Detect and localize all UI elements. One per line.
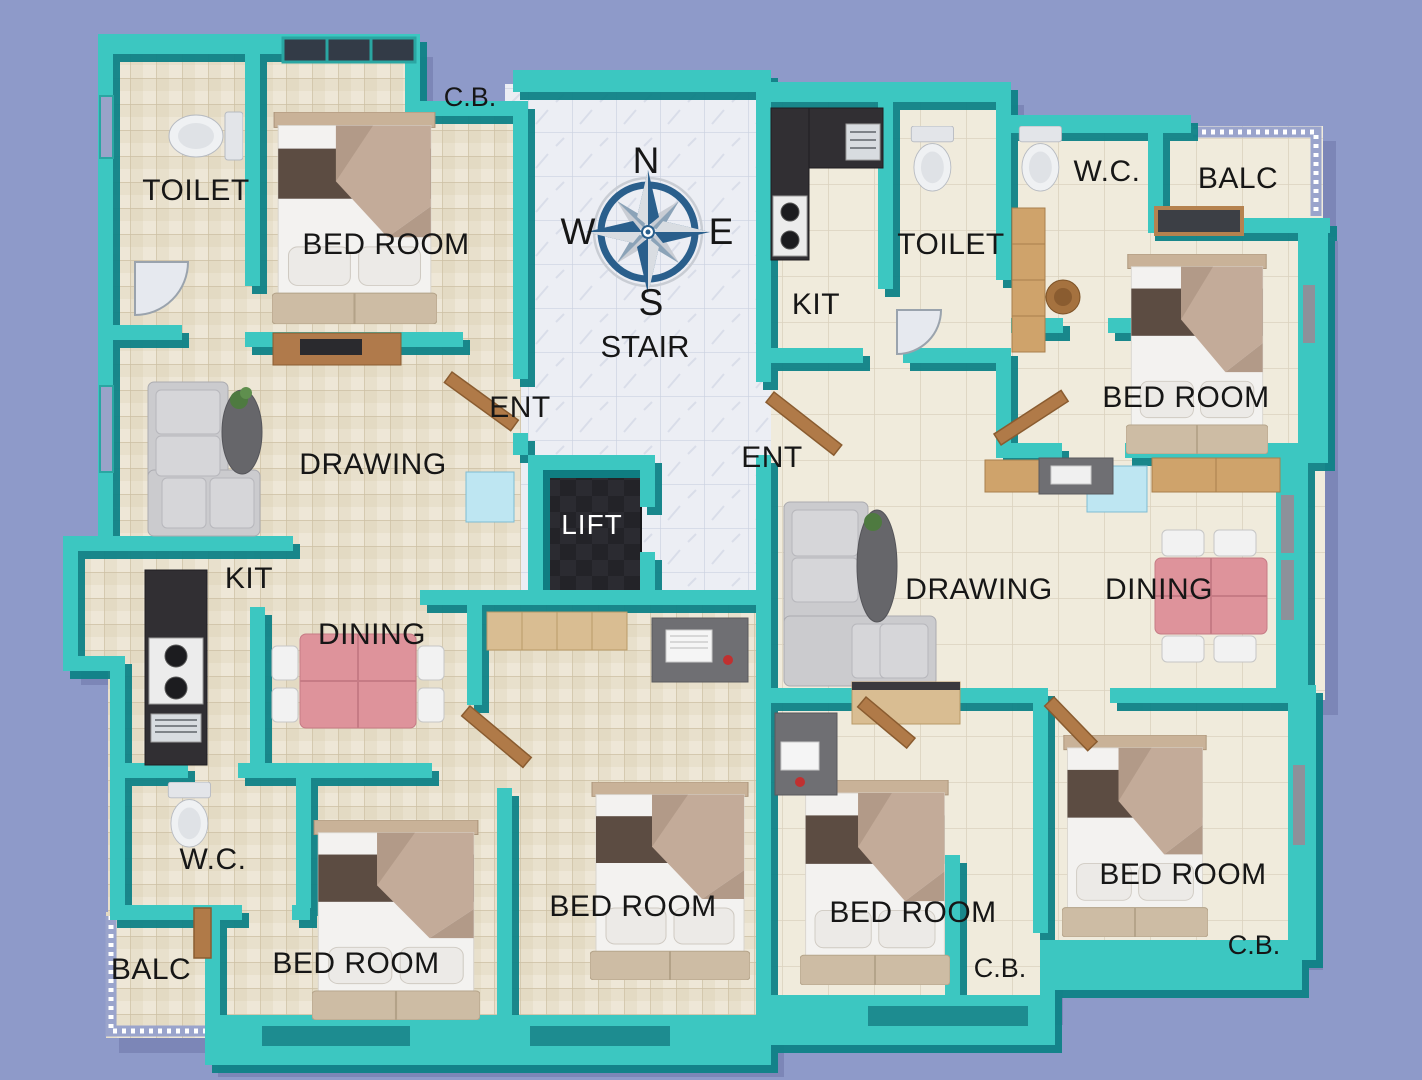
bed-bottom-left [312, 820, 480, 1020]
label-cb-bottom-middle: C.B. [974, 953, 1027, 983]
bed-bottom-middle [590, 782, 750, 980]
desk-dining-right [985, 458, 1113, 494]
label-compass-north: N [633, 140, 660, 181]
bed-top-left [272, 112, 437, 324]
shoe-cabinet-left [466, 472, 514, 522]
label-ent-right: ENT [741, 441, 803, 474]
wc-fixture-right [1019, 126, 1061, 191]
label-cb-top-left: C.B. [444, 82, 497, 112]
desk-bedroom-mid-right [775, 713, 837, 795]
label-wc-right: W.C. [1074, 155, 1141, 188]
window-right-wall-bedroom6 [1293, 765, 1305, 845]
wc-fixture-left [168, 782, 210, 847]
label-kit-right: KIT [792, 288, 840, 321]
door-balcony-left [194, 908, 211, 958]
label-dining-left: DINING [318, 618, 426, 651]
rattan-stool-center [1054, 288, 1072, 306]
wardrobe-lobby-right [1012, 208, 1045, 352]
kitchen-counter-left [145, 570, 207, 765]
bed-bottom-right [1062, 735, 1208, 937]
window-right-wall-dining-2 [1281, 560, 1294, 620]
sideboard-dining-right [1152, 458, 1280, 492]
window-right-wall-bedroom4 [1303, 285, 1315, 343]
label-bedroom-top-right: BED ROOM [1102, 381, 1269, 414]
label-bedroom-bottom-middle: BED ROOM [549, 890, 716, 923]
label-bedroom-mid-right: BED ROOM [829, 896, 996, 929]
label-toilet-right: TOILET [897, 228, 1004, 261]
label-ent-left: ENT [489, 391, 551, 424]
label-balc-right: BALC [1198, 162, 1278, 195]
label-compass-south: S [639, 282, 664, 323]
label-compass-east: E [709, 211, 734, 252]
label-compass-west: W [561, 211, 596, 252]
desk-bedroom-middle [652, 618, 748, 682]
label-cb-bottom-right: C.B. [1228, 930, 1281, 960]
toilet-fixture-left [169, 112, 243, 160]
label-dining-right: DINING [1105, 573, 1213, 606]
label-bedroom-bottom-right: BED ROOM [1099, 858, 1266, 891]
label-wc-left: W.C. [180, 843, 247, 876]
floor-plan-canvas: C.B. TOILET BED ROOM N W E S STAIR ENT K… [0, 0, 1422, 1080]
window-left-wall-top [100, 96, 113, 158]
window-bottom-bedroom5 [868, 1006, 1028, 1026]
label-kit-left: KIT [225, 562, 273, 595]
label-lift: LIFT [561, 509, 623, 540]
label-toilet-left: TOILET [142, 174, 249, 207]
coffee-table-right [857, 510, 897, 622]
window-left-wall-drawing [100, 386, 113, 472]
floor-plan-svg: C.B. TOILET BED ROOM N W E S STAIR ENT K… [0, 0, 1422, 1080]
wardrobe-bedroom-middle [487, 612, 627, 650]
window-right-wall-dining-1 [1281, 495, 1294, 553]
label-drawing-right: DRAWING [905, 573, 1052, 606]
label-bedroom-bottom-left: BED ROOM [272, 947, 439, 980]
toilet-fixture-right [911, 126, 953, 191]
tv-unit-bedroom-top-left [273, 333, 401, 365]
window-bedroom-top-left [283, 38, 415, 62]
window-bottom-bedroom3 [530, 1026, 670, 1046]
window-bottom-bedroom2 [262, 1026, 410, 1046]
label-stair: STAIR [601, 329, 690, 364]
window-balcony-right [1156, 208, 1242, 234]
label-balc-left: BALC [111, 953, 191, 986]
bed-mid-right [800, 780, 950, 985]
label-bedroom-top-left: BED ROOM [302, 228, 469, 261]
label-drawing-left: DRAWING [299, 448, 446, 481]
bed-top-right [1126, 254, 1268, 454]
